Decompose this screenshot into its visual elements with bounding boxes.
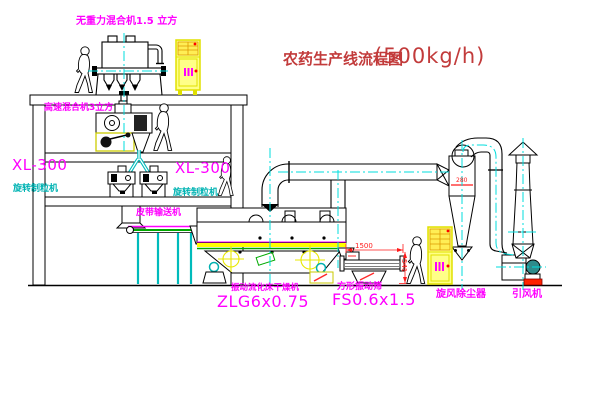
indicator-marks bbox=[184, 68, 193, 76]
conveyor-legs bbox=[138, 233, 191, 284]
person-second-level-icon bbox=[154, 104, 172, 151]
belt-conveyor-label: 皮带输送机 bbox=[136, 209, 181, 218]
indicator-light-icon bbox=[447, 230, 450, 233]
vibrating-sieve bbox=[340, 252, 404, 283]
page-title-capacity: (500kg/h) bbox=[374, 46, 485, 67]
control-cabinet-bottom bbox=[428, 227, 452, 284]
sieve-model: FS0.6x1.5 bbox=[332, 292, 416, 308]
cyclone-dimension: 280 bbox=[456, 178, 467, 184]
indicator-light-icon bbox=[194, 43, 197, 46]
sieve-width-dimension: 1500 bbox=[355, 243, 373, 250]
person-top-platform-icon bbox=[75, 47, 93, 93]
belt-conveyor bbox=[127, 227, 200, 285]
process-flow-diagram: 无重力混合机1.5 立方 农药生产线流程图 (500kg/h) 高速混合机3立方… bbox=[0, 0, 600, 403]
cyclone-name: 旋风除尘器 bbox=[436, 290, 486, 300]
indicator-marks bbox=[435, 262, 444, 271]
sieve-height-dimension: 541 bbox=[400, 259, 407, 272]
indicator-light-icon bbox=[447, 265, 450, 268]
control-cabinet-top bbox=[176, 40, 200, 95]
granulator-center-model: XL-300 bbox=[175, 161, 230, 176]
fluid-bed-dryer bbox=[190, 208, 354, 283]
granulator-right-unit bbox=[140, 166, 167, 197]
fan-name: 引风机 bbox=[512, 290, 542, 300]
person-ground-icon bbox=[407, 237, 425, 284]
indicator-light-icon bbox=[195, 70, 198, 73]
dryer-model: ZLG6x0.75 bbox=[217, 294, 309, 310]
granulator-center-name: 旋转制粒机 bbox=[173, 189, 218, 198]
induced-draft-fan bbox=[502, 255, 542, 285]
high-speed-mixer-label: 高速混合机3立方 bbox=[44, 104, 113, 113]
granulator-left-model: XL-300 bbox=[12, 158, 67, 173]
granulator-left-name: 旋转制粒机 bbox=[13, 185, 58, 194]
gravity-mixer-label: 无重力混合机1.5 立方 bbox=[76, 17, 177, 27]
gravity-mixer bbox=[92, 36, 166, 101]
exhaust-duct bbox=[261, 161, 437, 212]
